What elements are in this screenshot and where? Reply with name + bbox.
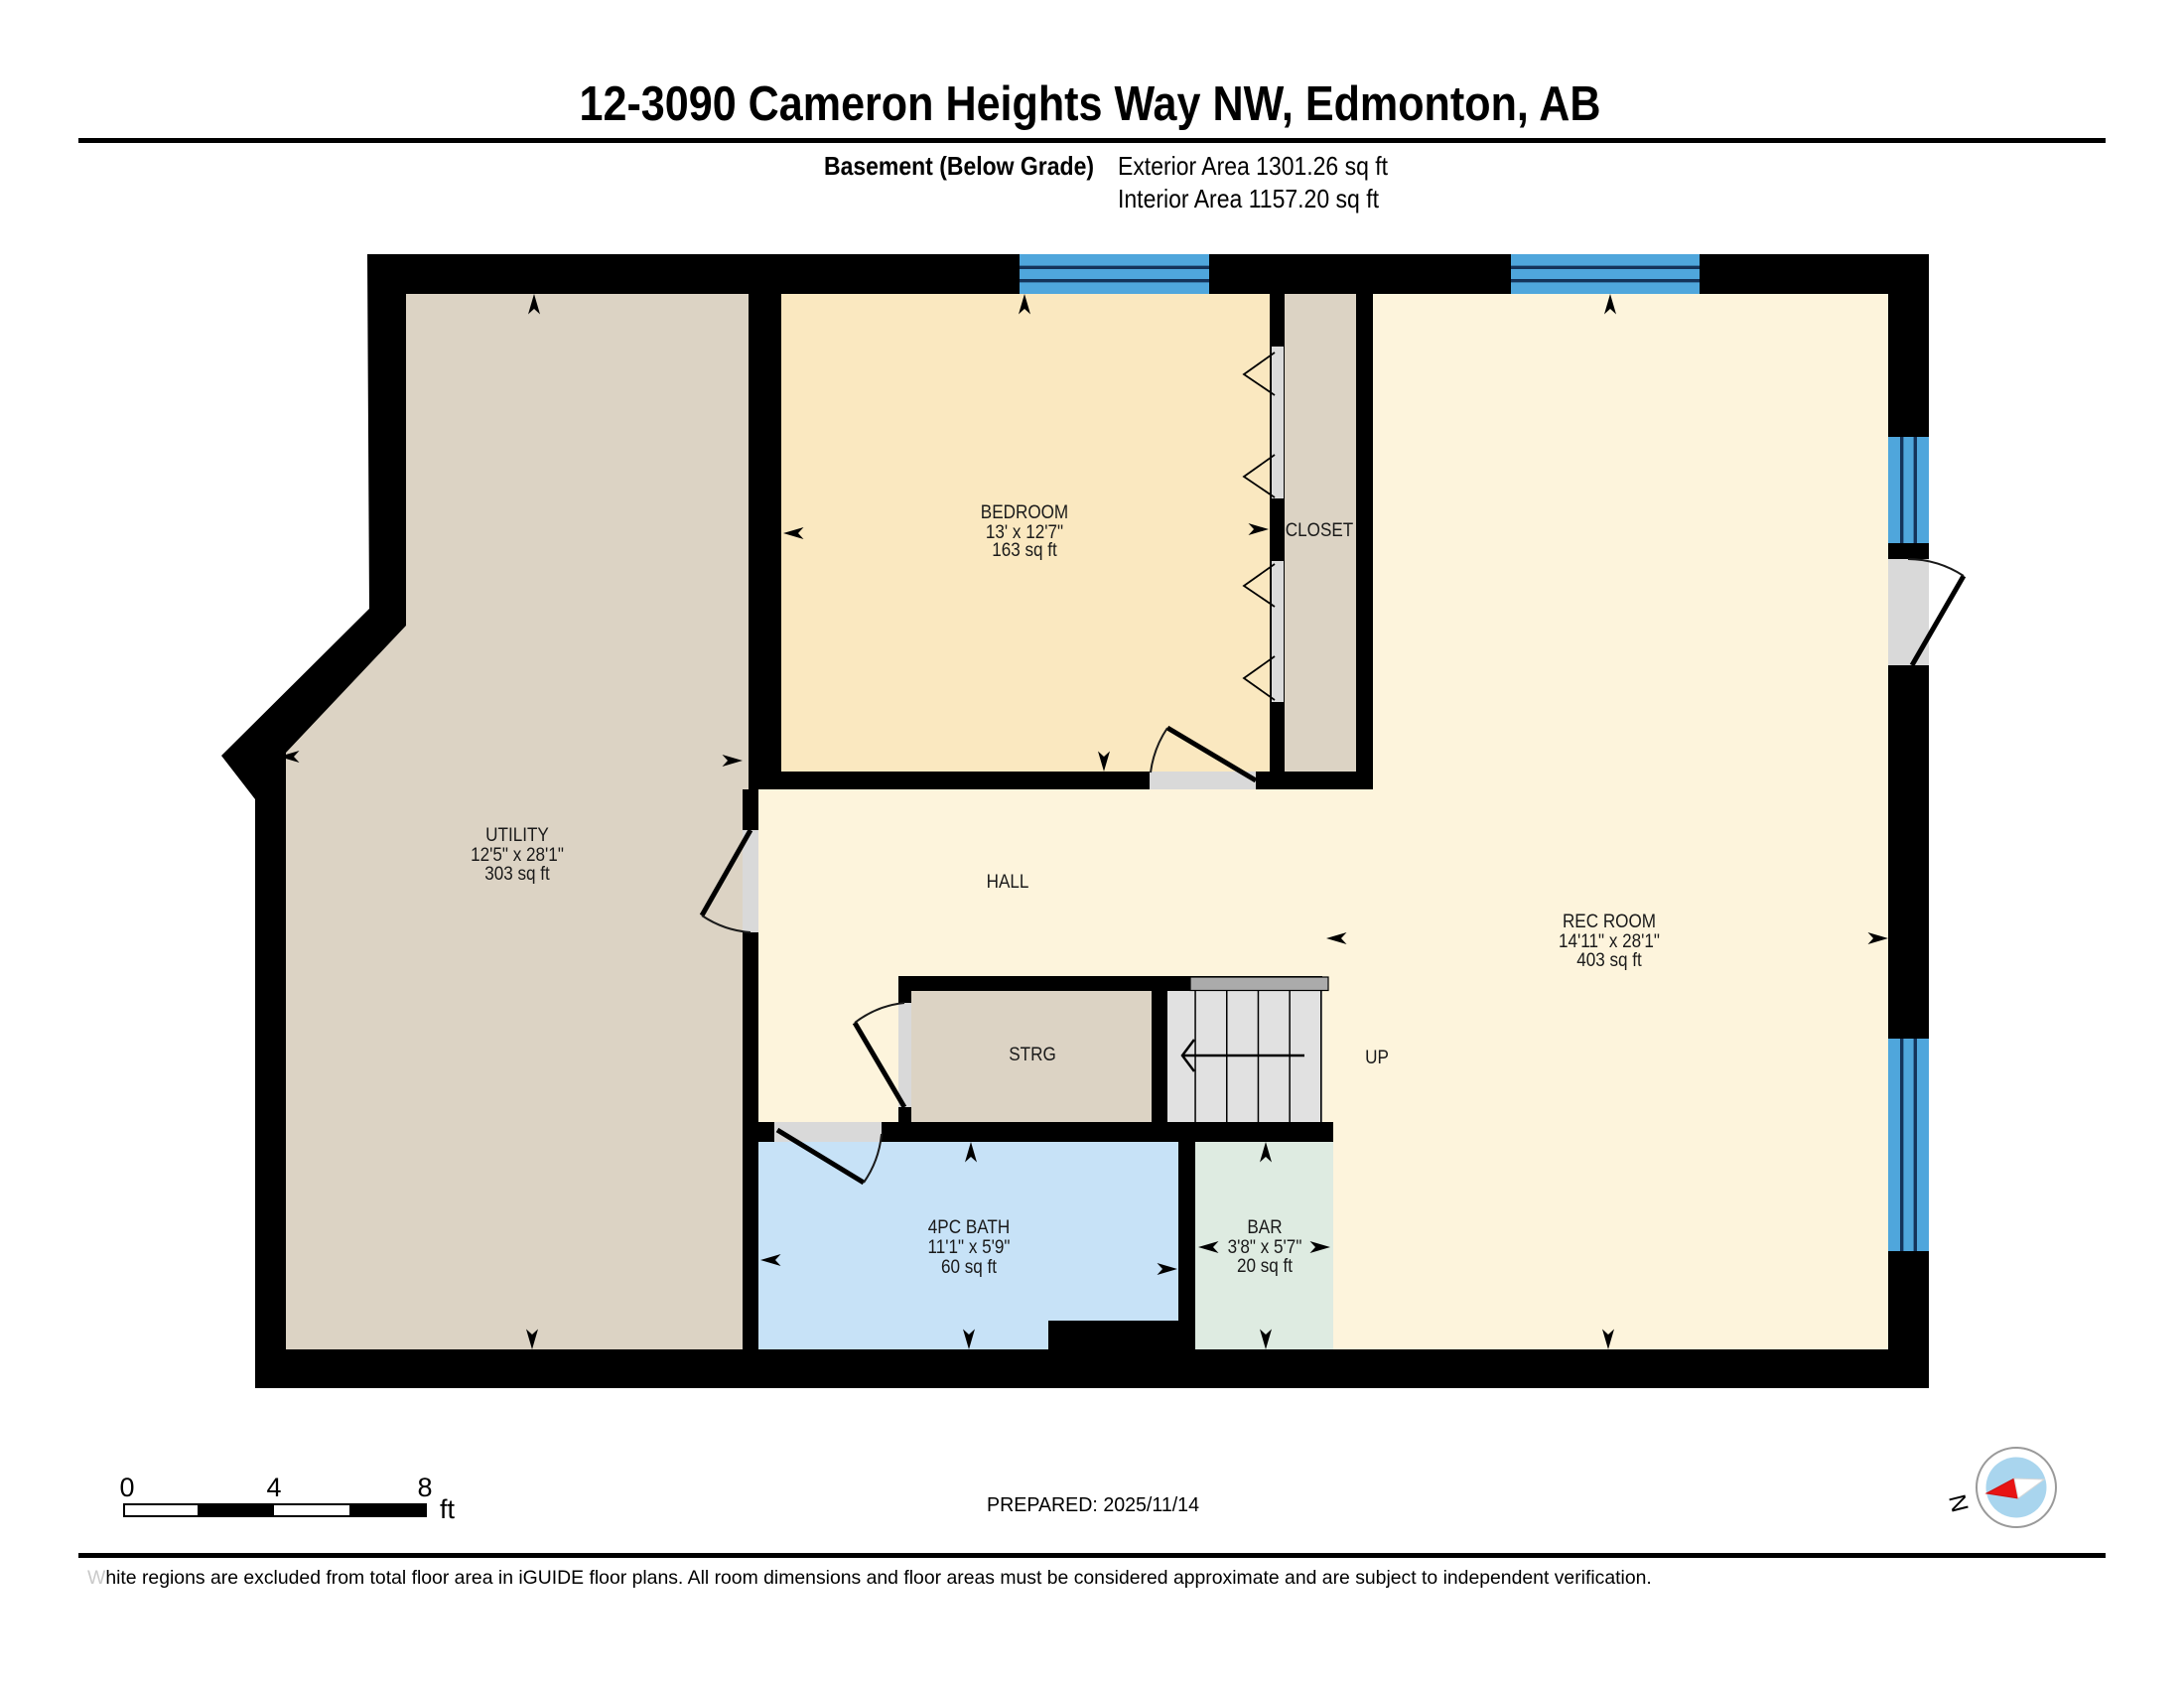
svg-text:Basement (Below Grade): Basement (Below Grade) [824, 151, 1094, 181]
svg-text:60 sq ft: 60 sq ft [941, 1257, 998, 1278]
svg-text:Interior Area 1157.20 sq ft: Interior Area 1157.20 sq ft [1118, 184, 1380, 213]
svg-text:White regions are excluded fro: White regions are excluded from total fl… [87, 1567, 1652, 1589]
svg-text:303 sq ft: 303 sq ft [484, 864, 550, 885]
svg-text:BAR: BAR [1247, 1217, 1282, 1238]
svg-text:12'5" x 28'1": 12'5" x 28'1" [471, 845, 564, 866]
svg-text:STRG: STRG [1009, 1045, 1056, 1065]
svg-text:4PC BATH: 4PC BATH [928, 1217, 1010, 1238]
svg-text:ft: ft [440, 1494, 456, 1524]
svg-text:12-3090 Cameron Heights Way NW: 12-3090 Cameron Heights Way NW, Edmonton… [580, 77, 1601, 131]
svg-text:UP: UP [1365, 1048, 1389, 1068]
svg-text:0: 0 [119, 1473, 134, 1502]
svg-text:163 sq ft: 163 sq ft [992, 540, 1057, 561]
svg-text:PREPARED: 2025/11/14: PREPARED: 2025/11/14 [987, 1493, 1199, 1516]
svg-text:Exterior Area 1301.26 sq ft: Exterior Area 1301.26 sq ft [1118, 151, 1389, 181]
svg-text:CLOSET: CLOSET [1286, 520, 1354, 541]
svg-text:403 sq ft: 403 sq ft [1576, 950, 1642, 971]
svg-text:N: N [1945, 1491, 1975, 1514]
svg-text:REC ROOM: REC ROOM [1563, 912, 1656, 932]
svg-text:UTILITY: UTILITY [485, 825, 549, 846]
svg-text:4: 4 [266, 1473, 281, 1502]
svg-text:14'11" x 28'1": 14'11" x 28'1" [1559, 931, 1660, 952]
svg-text:8: 8 [417, 1473, 432, 1502]
svg-text:20 sq ft: 20 sq ft [1237, 1256, 1294, 1277]
svg-text:11'1" x 5'9": 11'1" x 5'9" [928, 1237, 1011, 1258]
svg-text:3'8" x 5'7": 3'8" x 5'7" [1228, 1237, 1302, 1258]
svg-text:HALL: HALL [987, 872, 1029, 893]
svg-text:BEDROOM: BEDROOM [981, 502, 1068, 523]
